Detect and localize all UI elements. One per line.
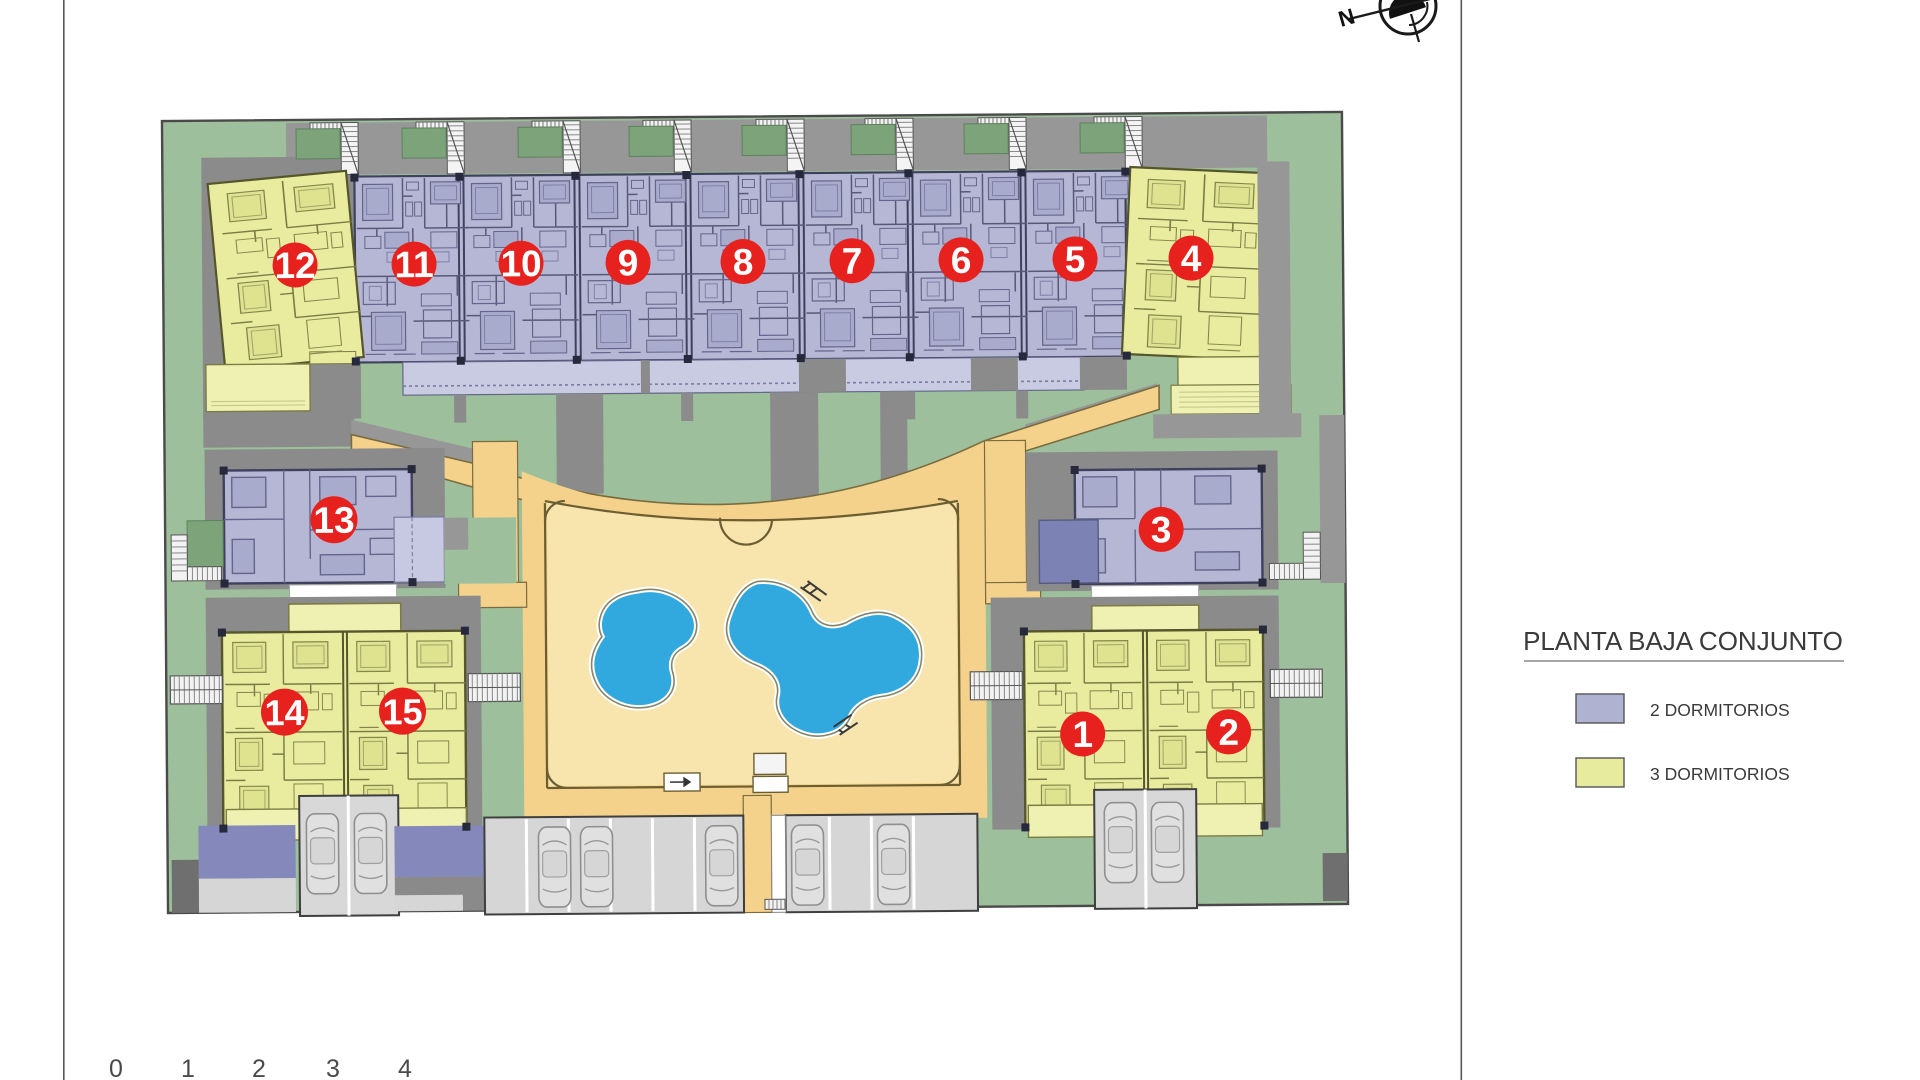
svg-text:2: 2	[1218, 712, 1239, 753]
svg-text:9: 9	[618, 242, 639, 283]
svg-text:10: 10	[500, 243, 541, 284]
svg-text:2: 2	[252, 1055, 266, 1080]
svg-text:12: 12	[274, 245, 315, 286]
svg-text:0: 0	[109, 1055, 123, 1080]
svg-text:14: 14	[264, 692, 304, 733]
svg-text:15: 15	[382, 691, 422, 732]
svg-text:6: 6	[951, 240, 972, 281]
svg-text:4: 4	[398, 1055, 412, 1080]
svg-text:3: 3	[1151, 509, 1172, 550]
svg-text:PLANTA BAJA CONJUNTO: PLANTA BAJA CONJUNTO	[1523, 626, 1843, 656]
svg-text:1: 1	[181, 1055, 195, 1080]
svg-text:3 DORMITORIOS: 3 DORMITORIOS	[1650, 764, 1790, 784]
svg-text:13: 13	[313, 500, 354, 541]
svg-text:3: 3	[326, 1055, 340, 1080]
svg-text:8: 8	[733, 241, 754, 282]
svg-text:4: 4	[1181, 238, 1202, 279]
svg-text:2 DORMITORIOS: 2 DORMITORIOS	[1650, 700, 1790, 720]
svg-text:1: 1	[1072, 714, 1093, 755]
svg-text:7: 7	[842, 241, 863, 282]
svg-text:5: 5	[1065, 239, 1086, 280]
svg-text:11: 11	[394, 244, 433, 285]
